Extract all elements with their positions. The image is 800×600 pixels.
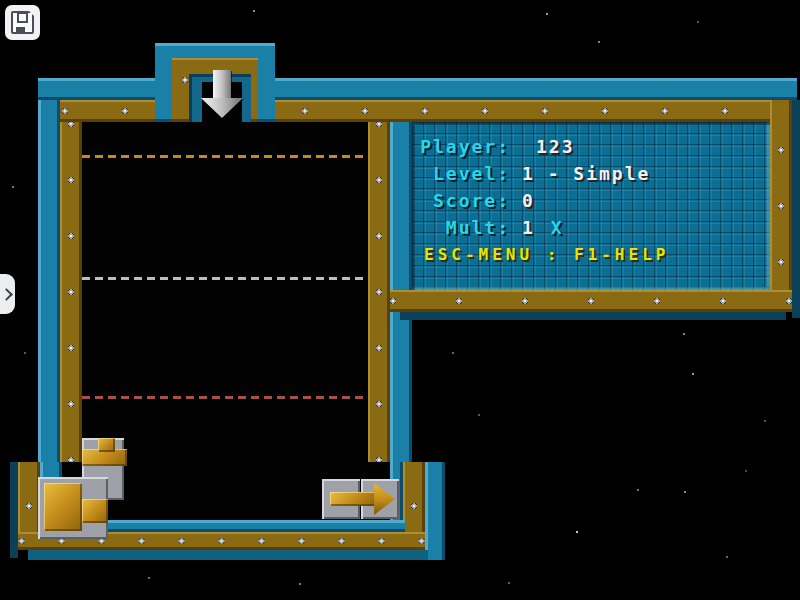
- entry-arrow-head: [201, 98, 243, 118]
- entry-arrow-shaft: [213, 70, 231, 100]
- panel-wall-bottom-gold: [390, 290, 792, 312]
- hud-panel: Player: 123 Level: 1 - Simple Score: 0 M…: [412, 122, 770, 290]
- wall-divider-gold: [368, 122, 390, 462]
- guide-line-3: [82, 396, 368, 399]
- wall-bottom-right-teal: [425, 462, 445, 560]
- hud-row-level: Level: 1 - Simple: [412, 160, 770, 187]
- panel-wall-right-gold: [770, 100, 792, 312]
- game-screen: Player: 123 Level: 1 - Simple Score: 0 M…: [0, 0, 800, 600]
- hud-row-score: Score: 0: [412, 187, 770, 214]
- exit-right-arrow-shaft: [330, 492, 376, 506]
- hud-value-mult: 1: [522, 217, 535, 238]
- entry-down-arrow-icon: [201, 70, 243, 118]
- hud-row-player: Player: 123: [412, 133, 770, 160]
- tee-pipe-stub: [98, 438, 115, 452]
- hud-label-player: Player:: [412, 136, 510, 157]
- floppy-disk-icon: [11, 11, 34, 34]
- starfield: [0, 0, 2, 2]
- wall-bottom-outer-teal: [28, 550, 428, 560]
- guide-line-1: [82, 155, 368, 158]
- hud-value-level: 1 - Simple: [522, 163, 650, 184]
- hud-label-mult: Mult:: [412, 217, 510, 238]
- hud-suffix-mult-x: X: [551, 217, 564, 238]
- hud-help-text: ESC-MENU : F1-HELP: [424, 245, 770, 264]
- hud-label-level: Level:: [412, 163, 510, 184]
- wall-bottom-left-shadow: [10, 462, 18, 558]
- elbow-pipe-body: [44, 483, 82, 531]
- drawer-tab[interactable]: [0, 274, 15, 314]
- wall-top-teal: [38, 78, 797, 100]
- guide-line-2: [82, 277, 368, 280]
- wall-left-teal: [38, 100, 60, 462]
- hud-value-player: 123: [536, 136, 575, 157]
- chevron-right-icon: [0, 288, 12, 301]
- panel-wall-right-shadow: [792, 100, 800, 318]
- panel-wall-bottom-shadow: [400, 312, 786, 320]
- hud-value-score: 0: [522, 190, 535, 211]
- save-button[interactable]: [5, 5, 40, 40]
- hud-row-mult: Mult: 1 X: [412, 214, 770, 241]
- elbow-pipe-arm: [82, 499, 108, 523]
- wall-left-gold: [60, 122, 82, 462]
- hud-label-score: Score:: [412, 190, 510, 211]
